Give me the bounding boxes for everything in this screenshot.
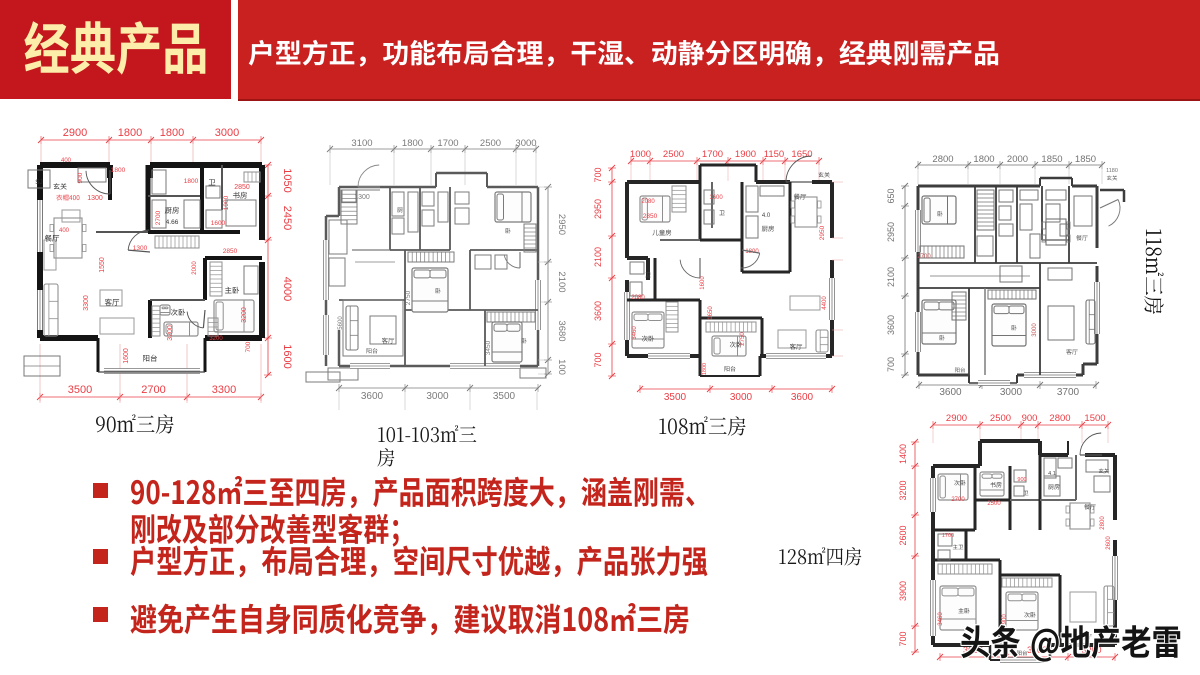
svg-text:1180: 1180 [1106, 168, 1118, 174]
svg-text:1500: 1500 [1084, 413, 1105, 424]
svg-text:400: 400 [59, 228, 70, 234]
svg-text:1800: 1800 [160, 127, 184, 139]
svg-text:2100: 2100 [886, 267, 896, 287]
svg-text:2080: 2080 [641, 199, 655, 205]
svg-text:3680: 3680 [556, 320, 567, 341]
svg-text:2100: 2100 [593, 247, 603, 267]
svg-text:2850: 2850 [234, 184, 250, 191]
svg-text:1400: 1400 [898, 444, 908, 464]
svg-text:2700: 2700 [917, 254, 931, 260]
svg-text:4.66: 4.66 [166, 219, 179, 226]
svg-text:3100: 3100 [351, 138, 372, 149]
svg-text:700: 700 [898, 631, 908, 646]
svg-text:2600: 2600 [1106, 536, 1112, 550]
svg-text:1600: 1600 [700, 276, 706, 290]
svg-text:700: 700 [245, 341, 252, 352]
svg-text:2450: 2450 [281, 206, 293, 230]
svg-text:3500: 3500 [493, 391, 516, 402]
svg-text:2700: 2700 [951, 497, 965, 503]
svg-text:1800: 1800 [111, 167, 126, 174]
svg-text:1300: 1300 [133, 245, 148, 252]
svg-text:1700: 1700 [942, 533, 954, 539]
svg-text:1600: 1600 [123, 348, 130, 364]
svg-text:1000: 1000 [630, 149, 651, 160]
svg-text:3000: 3000 [426, 391, 449, 402]
svg-text:1300: 1300 [354, 194, 370, 201]
svg-text:2950: 2950 [593, 199, 603, 219]
svg-text:2100: 2100 [556, 271, 567, 292]
svg-text:3200: 3200 [898, 480, 908, 500]
svg-text:3450: 3450 [485, 340, 492, 355]
svg-text:2750: 2750 [405, 290, 412, 305]
svg-text:700: 700 [593, 352, 603, 367]
svg-text:2800: 2800 [1049, 413, 1070, 424]
svg-text:2000: 2000 [1007, 154, 1028, 165]
svg-text:2500: 2500 [990, 413, 1011, 424]
svg-text:900: 900 [1017, 477, 1026, 483]
svg-text:3460: 3460 [938, 612, 944, 626]
svg-text:700: 700 [886, 357, 896, 372]
svg-text:2700: 2700 [155, 210, 162, 225]
svg-text:2900: 2900 [946, 413, 967, 424]
svg-text:3600: 3600 [593, 301, 603, 321]
svg-text:3000: 3000 [215, 127, 239, 139]
svg-text:1800: 1800 [402, 138, 423, 149]
svg-text:2500: 2500 [987, 501, 1001, 507]
svg-text:3600: 3600 [939, 387, 962, 398]
svg-text:2080: 2080 [631, 295, 645, 301]
svg-text:1050: 1050 [281, 168, 293, 192]
svg-text:SJ: SJ [35, 179, 43, 186]
svg-text:900: 900 [1022, 413, 1038, 424]
svg-text:1300: 1300 [87, 195, 103, 202]
svg-text:1850: 1850 [1075, 154, 1096, 165]
svg-text:2750: 2750 [740, 332, 746, 346]
svg-text:1700: 1700 [437, 138, 458, 149]
svg-text:1850: 1850 [1041, 154, 1062, 165]
svg-text:3900: 3900 [898, 581, 908, 601]
svg-text:2700: 2700 [141, 384, 165, 396]
svg-text:2900: 2900 [63, 127, 87, 139]
svg-text:3000: 3000 [730, 392, 753, 403]
svg-text:1600: 1600 [211, 220, 226, 227]
svg-text:1800: 1800 [184, 178, 199, 185]
svg-text:1900: 1900 [735, 149, 756, 160]
svg-text:2500: 2500 [663, 149, 684, 160]
svg-text:1600: 1600 [709, 195, 723, 201]
svg-text:3460: 3460 [632, 326, 638, 340]
svg-text:1700: 1700 [702, 149, 723, 160]
svg-text:1650: 1650 [708, 306, 714, 320]
svg-text:2500: 2500 [480, 138, 501, 149]
svg-text:2000: 2000 [192, 261, 198, 275]
svg-text:650: 650 [886, 188, 896, 203]
svg-text:4400: 4400 [822, 296, 828, 310]
svg-text:3200: 3200 [241, 307, 248, 323]
svg-text:3600: 3600 [791, 392, 814, 403]
svg-text:5600: 5600 [338, 316, 344, 330]
svg-text:2850: 2850 [643, 213, 658, 220]
svg-text:1600: 1600 [281, 344, 293, 368]
svg-text:3000: 3000 [1000, 387, 1023, 398]
svg-text:3600: 3600 [886, 315, 896, 335]
svg-text:3300: 3300 [83, 295, 90, 311]
svg-text:3600: 3600 [361, 391, 384, 402]
svg-text:3300: 3300 [212, 384, 236, 396]
svg-text:1150: 1150 [764, 149, 784, 160]
svg-text:2950: 2950 [556, 214, 567, 235]
svg-text:3700: 3700 [1057, 387, 1080, 398]
svg-text:3000: 3000 [1032, 323, 1038, 337]
svg-text:3500: 3500 [68, 384, 92, 396]
svg-text:2950: 2950 [819, 225, 826, 240]
svg-text:2850: 2850 [223, 248, 238, 255]
svg-text:3500: 3500 [664, 392, 687, 403]
svg-text:2800: 2800 [1100, 516, 1106, 530]
svg-text:400: 400 [61, 158, 72, 164]
svg-text:3200: 3200 [209, 336, 223, 342]
svg-text:3000: 3000 [515, 138, 536, 149]
svg-text:700: 700 [593, 167, 603, 182]
svg-text:1800: 1800 [973, 154, 994, 165]
svg-text:100: 100 [556, 359, 567, 375]
svg-text:4000: 4000 [281, 277, 293, 301]
svg-text:4.1: 4.1 [1048, 471, 1056, 477]
svg-text:1550: 1550 [99, 257, 106, 273]
svg-text:1800: 1800 [702, 363, 708, 375]
svg-text:2800: 2800 [932, 154, 953, 165]
svg-text:4.0: 4.0 [762, 213, 771, 219]
svg-text:900: 900 [77, 172, 84, 183]
svg-text:2950: 2950 [886, 222, 896, 242]
svg-text:3200: 3200 [167, 325, 174, 341]
svg-text:1800: 1800 [118, 127, 142, 139]
svg-text:2600: 2600 [898, 525, 908, 545]
